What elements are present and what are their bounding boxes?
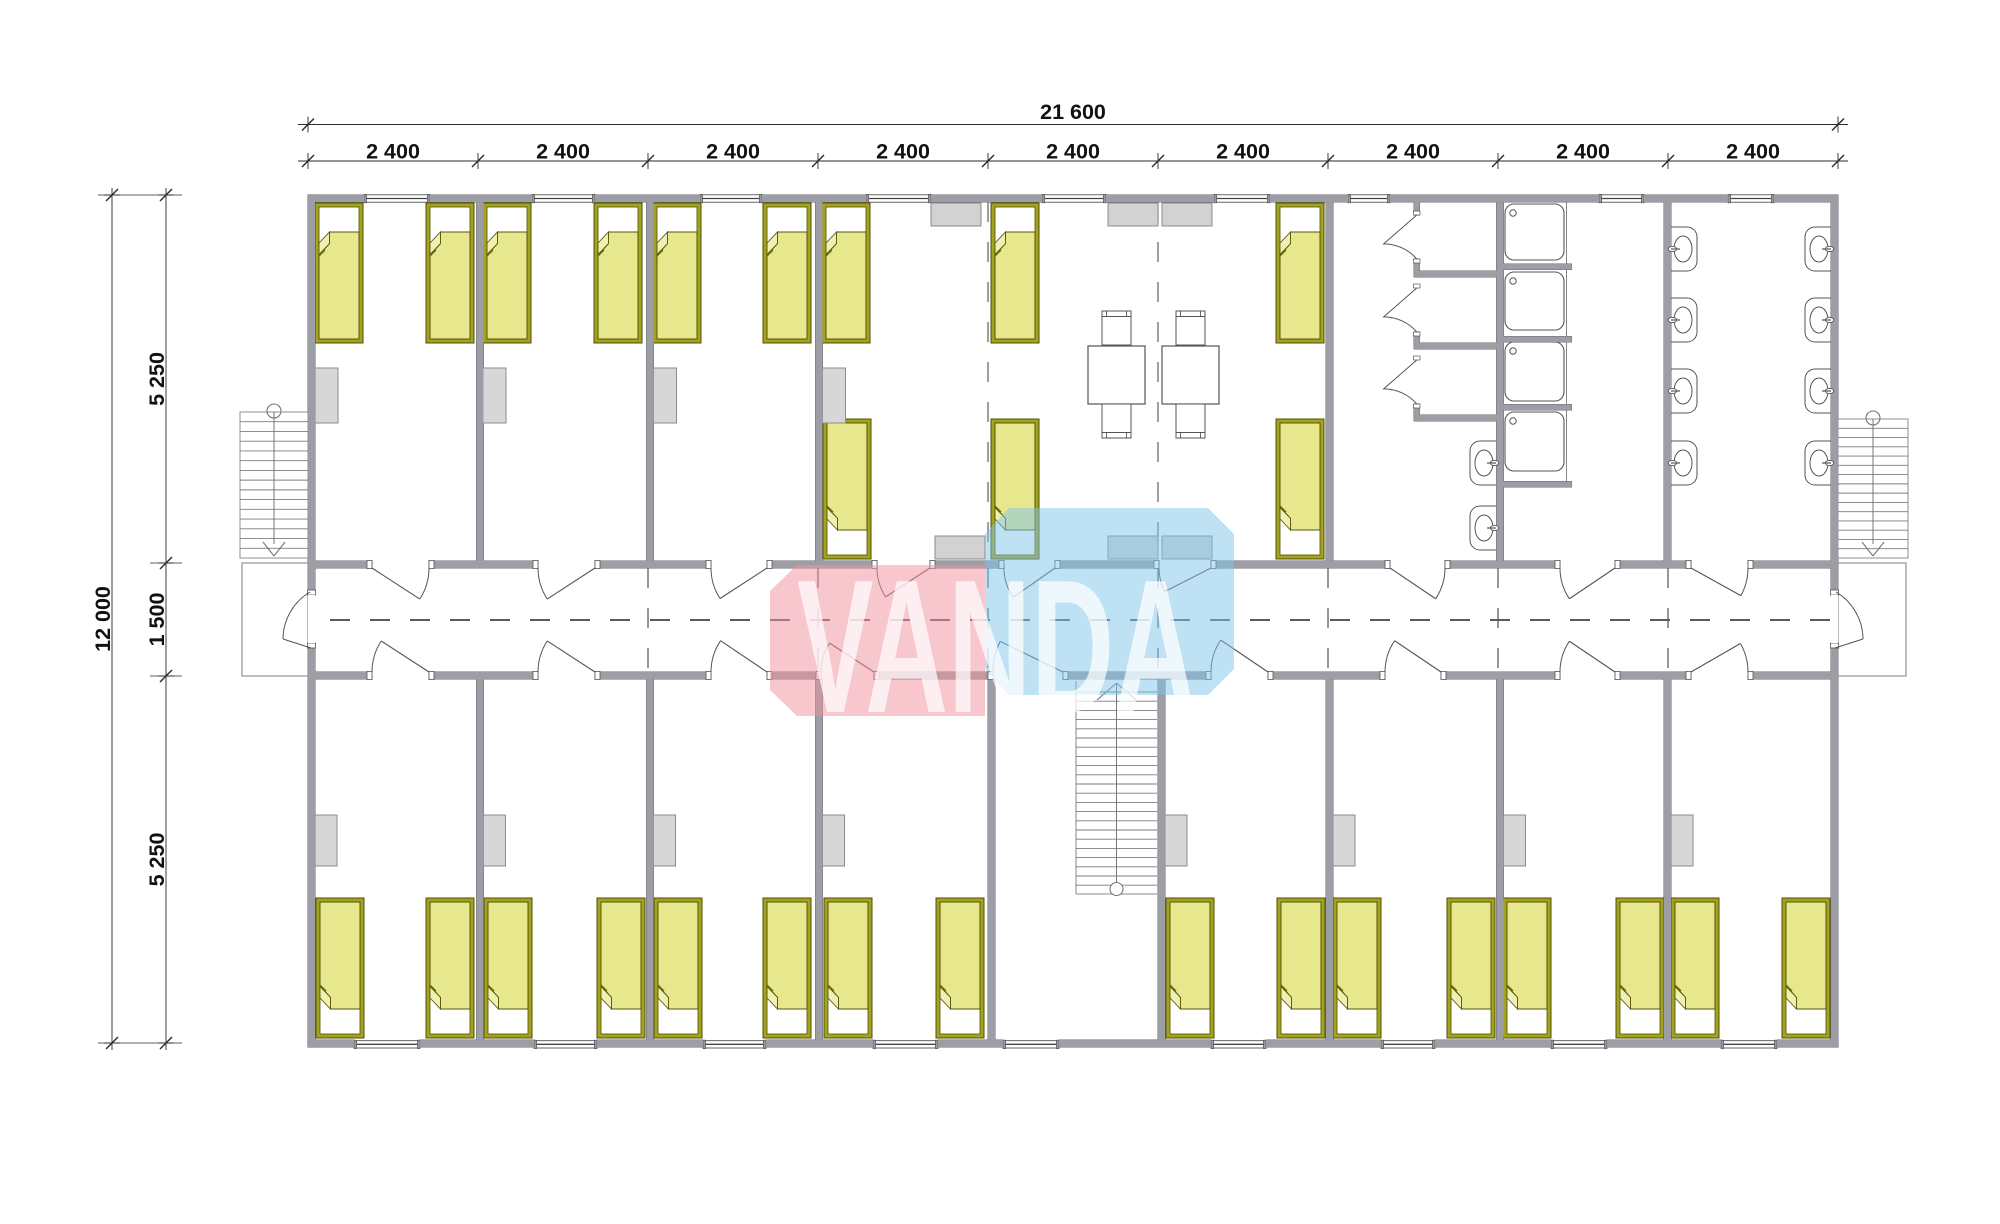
svg-text:12 000: 12 000 [91,586,115,652]
svg-text:2 400: 2 400 [1556,140,1610,164]
svg-text:5 250: 5 250 [145,352,169,406]
svg-text:2 400: 2 400 [366,140,420,164]
svg-text:2 400: 2 400 [876,140,930,164]
svg-text:2 400: 2 400 [1726,140,1780,164]
svg-text:21 600: 21 600 [1040,100,1106,124]
svg-text:VANDA: VANDA [797,541,1197,753]
svg-text:2 400: 2 400 [706,140,760,164]
svg-text:2 400: 2 400 [1046,140,1100,164]
svg-text:5 250: 5 250 [145,833,169,887]
svg-text:2 400: 2 400 [1216,140,1270,164]
svg-text:2 400: 2 400 [1386,140,1440,164]
svg-text:2 400: 2 400 [536,140,590,164]
svg-text:1 500: 1 500 [145,593,169,647]
